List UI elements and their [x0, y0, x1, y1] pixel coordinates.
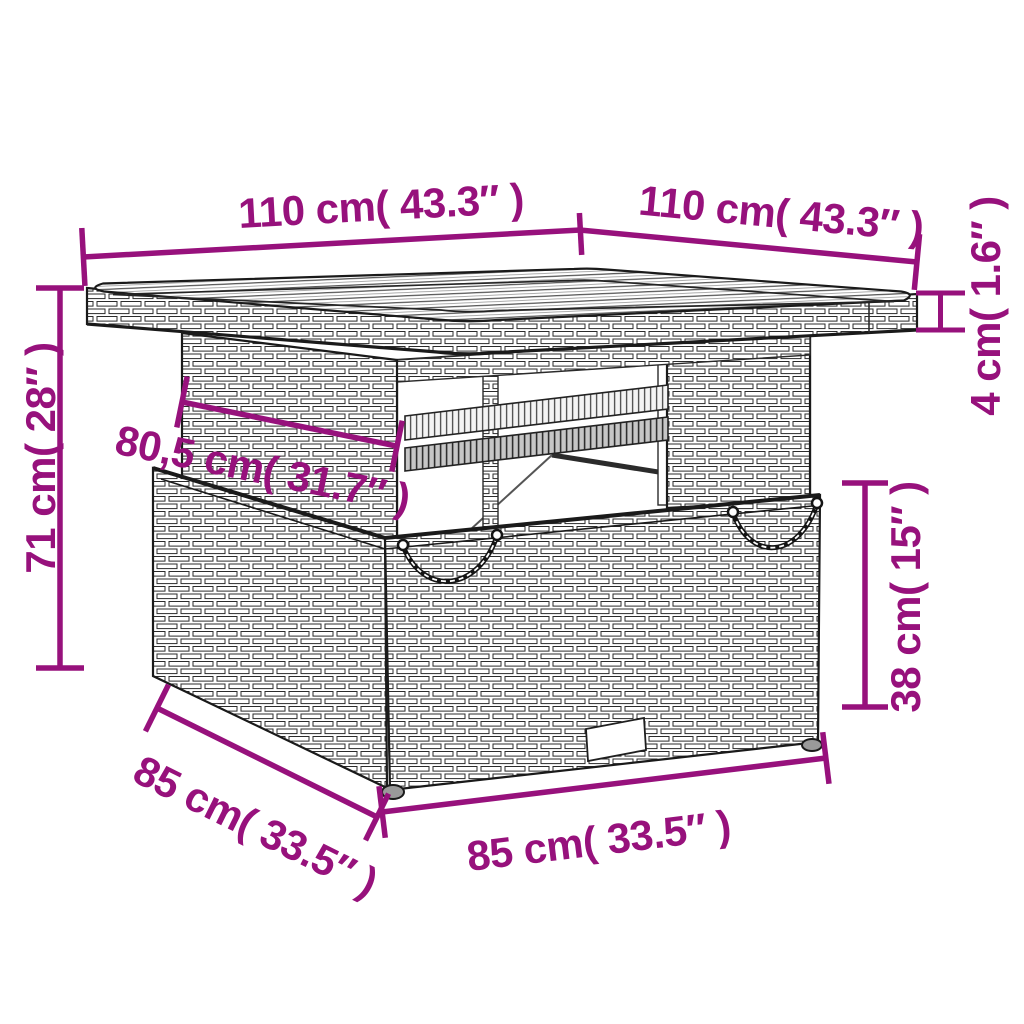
diagram-canvas: 110 cm( 43.3″ ) 110 cm( 43.3″ ) 4 cm( 1.… — [0, 0, 1024, 1024]
dimension-tabletop-thickness-label: 4 cm( 1.6″ ) — [962, 196, 1009, 416]
dimension-total-height-label: 71 cm( 28″ ) — [17, 342, 64, 573]
dimension-diagram: 110 cm( 43.3″ ) 110 cm( 43.3″ ) 4 cm( 1.… — [0, 0, 1024, 1024]
dimension-base-height-label: 38 cm( 15″ ) — [882, 481, 929, 712]
base-foot-right — [802, 739, 822, 751]
